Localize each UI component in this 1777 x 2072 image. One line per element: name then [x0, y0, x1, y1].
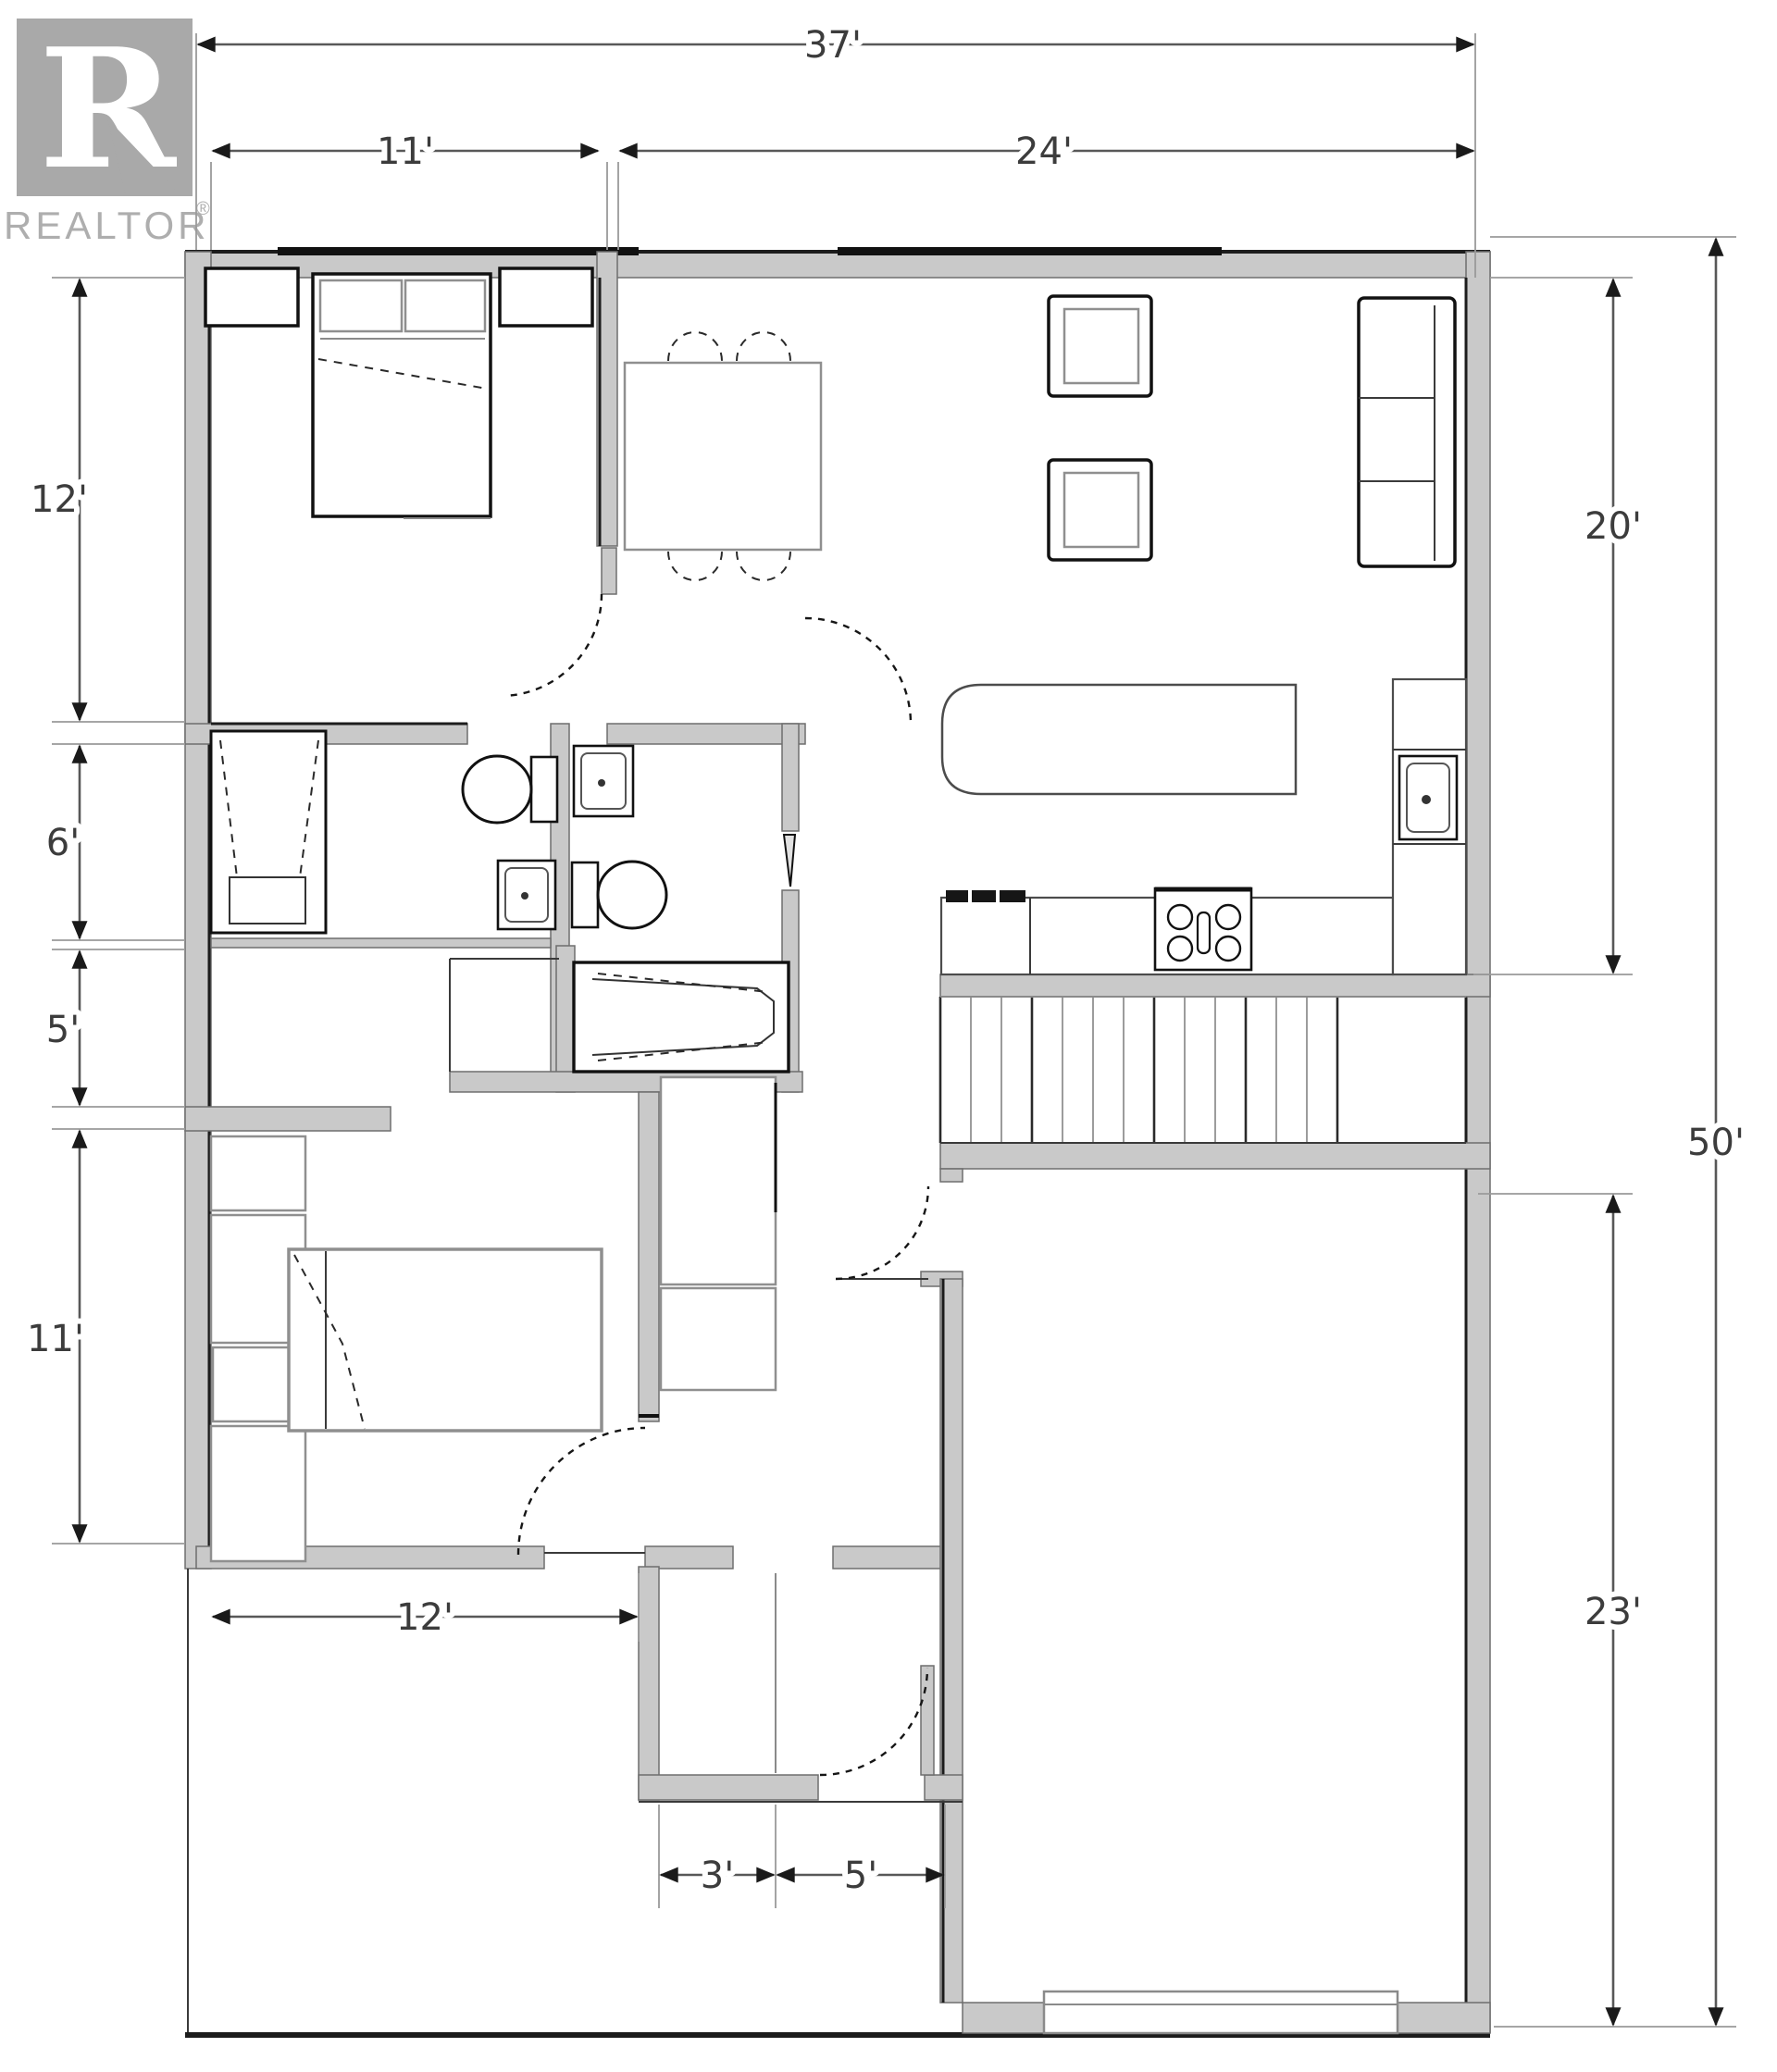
dining-set [625, 332, 821, 580]
dim-label-5ft-bottom: 5' [844, 1855, 877, 1897]
nightstand-right [500, 268, 592, 326]
dim-entry-right: 5' [777, 1855, 943, 1897]
bed2 [289, 1249, 602, 1431]
sofa [1359, 298, 1455, 566]
great-room-furniture [1049, 296, 1455, 566]
dim-label-50ft: 50' [1687, 1122, 1745, 1164]
dim-left-mid: 6' [46, 746, 80, 938]
dim-left-upper: 12' [31, 279, 88, 720]
closet-shelf-4 [211, 1426, 305, 1561]
dim-label-24ft: 24' [1015, 130, 1073, 173]
wall-bath-top [607, 724, 805, 744]
bedroom1-furniture [205, 268, 592, 518]
registered-trademark-icon: ® [196, 199, 210, 219]
dim-label-11ft-top: 11' [377, 130, 434, 173]
hall-closet-lower [661, 1288, 776, 1390]
toilet-1 [463, 756, 557, 823]
dining-table [625, 363, 821, 550]
bath-sink-2 [498, 861, 555, 929]
door-arc-landing [836, 1186, 928, 1279]
window-top-right [838, 247, 1222, 255]
toilet-bowl [598, 862, 666, 928]
dim-label-23ft: 23' [1584, 1591, 1642, 1633]
window-top-left [278, 247, 639, 255]
door-arc-hall-greatroom [805, 618, 911, 724]
cooktop [1155, 888, 1251, 970]
garage-door [1044, 1991, 1398, 2033]
dim-label-3ft: 3' [701, 1855, 734, 1897]
dim-right-total: 50' [1687, 239, 1745, 2025]
hall-closets [661, 1077, 776, 1390]
wall-foyer-left [639, 1567, 659, 1800]
wall-right [1466, 252, 1490, 2032]
pillow-2 [405, 280, 485, 331]
wall-bath1-bottom [211, 938, 551, 948]
toilet-bowl [463, 756, 531, 823]
stairs [940, 997, 1466, 1143]
dim-bedroom2-width: 12' [213, 1596, 637, 1639]
dim-right-upper: 20' [1584, 279, 1642, 973]
armchair-2-seat [1064, 473, 1138, 547]
door-arc-entry [820, 1668, 927, 1775]
bathrooms [211, 731, 789, 1072]
dim-label-6ft: 6' [46, 822, 80, 864]
dim-label-11ft-left: 11' [27, 1318, 84, 1360]
door-arc-bedroom2 [518, 1428, 645, 1555]
dining-chair-bottom-1 [668, 552, 722, 580]
wall-under-counter [940, 974, 1490, 997]
wall-garage-bottom-right [1396, 2003, 1490, 2033]
dining-chair-top-2 [737, 332, 790, 361]
realtor-logo: R REALTOR ® [4, 12, 210, 247]
shower [211, 731, 326, 933]
wall-bedroom2-top [185, 1107, 391, 1131]
bath-sink-1 [574, 746, 633, 816]
dim-left-bottom: 11' [27, 1131, 84, 1542]
wall-bedroom2-right [639, 1092, 659, 1421]
toilet-2 [572, 862, 666, 928]
toilet-tank [572, 862, 598, 927]
wall-under-stairs [940, 1143, 1490, 1169]
kitchen-sink [1399, 756, 1457, 839]
dim-label-20ft: 20' [1584, 505, 1642, 548]
wall-stair-step [940, 1169, 963, 1182]
dim-right-lower: 23' [1584, 1196, 1642, 2025]
wall-closet-right [556, 946, 575, 1092]
wall-foyer-top [833, 1546, 946, 1569]
door-arc-bedroom1 [504, 594, 602, 696]
dining-chair-top-1 [668, 332, 722, 361]
dim-entry-left: 3' [661, 1855, 774, 1897]
kitchen-island [942, 685, 1296, 794]
bathtub [574, 962, 789, 1072]
wall-entry-right [925, 1775, 963, 1800]
dim-top-right: 24' [620, 130, 1473, 173]
wall-entry-left [639, 1775, 818, 1800]
wall-bath2-right-upper [782, 724, 799, 831]
dim-top-total: 37' [198, 24, 1473, 67]
realtor-logo-brand: REALTOR [4, 204, 210, 247]
closet-shelf-1 [211, 1136, 305, 1210]
kitchen [941, 679, 1466, 974]
dim-label-12ft-bottom: 12' [396, 1596, 454, 1639]
hall-closet-upper [661, 1077, 776, 1284]
pocket-door-leaf-bath2 [784, 835, 795, 887]
toilet-tank [531, 757, 557, 822]
dim-label-37ft: 37' [804, 24, 862, 67]
wall-left [185, 252, 211, 1569]
counter-vent-strip [946, 890, 1025, 902]
pillow-1 [320, 280, 402, 331]
dining-chair-bottom-2 [737, 552, 790, 580]
dim-label-12ft-left: 12' [31, 478, 88, 521]
dim-label-5ft-left: 5' [46, 1009, 80, 1051]
door-leaf-bedroom1 [602, 548, 616, 594]
armchair-1-seat [1064, 309, 1138, 383]
dim-top-left: 11' [213, 130, 598, 173]
bedroom2-furniture [211, 1136, 602, 1561]
floor-plan-drawing: R REALTOR ® [0, 0, 1777, 2072]
dim-left-lower: 5' [46, 951, 80, 1105]
garage [963, 1991, 1490, 2033]
faucet-icon [1422, 795, 1431, 804]
faucet-icon [521, 892, 528, 900]
stair-treads [940, 997, 1337, 1143]
nightstand-left [205, 268, 298, 326]
faucet-icon [598, 779, 605, 787]
wall-garage-bottom-left [963, 2003, 1046, 2033]
door-leaf-entry [921, 1666, 934, 1775]
wall-bedroom2-bottom-right [645, 1546, 733, 1569]
floor-plan-page: R REALTOR ® [0, 0, 1777, 2072]
